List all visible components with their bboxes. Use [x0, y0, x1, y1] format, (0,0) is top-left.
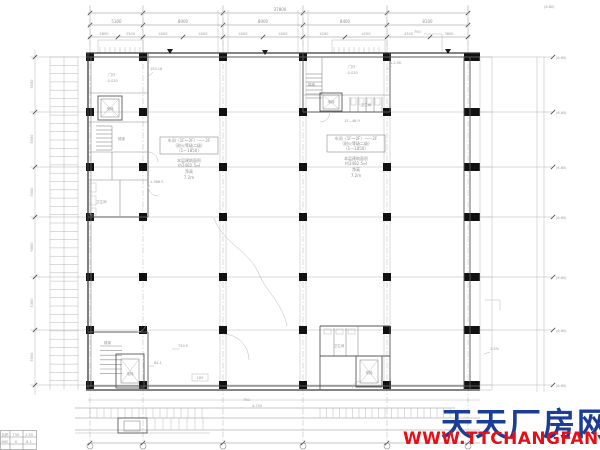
dim-left: 5300 — [30, 299, 34, 308]
annotation: 84.1 — [154, 361, 162, 365]
column-marker — [299, 213, 307, 221]
watermark-site-name: 天天厂房网 — [441, 399, 599, 433]
room-label-toilet: 卫生间 — [361, 102, 372, 107]
level-label: (6.60) — [556, 276, 567, 280]
column-marker — [219, 108, 227, 116]
level-label: (6.60) — [556, 111, 567, 115]
dim-left: 5500 — [30, 353, 34, 362]
floor-plan-svg: 车间（1F～2F）——2F （耐火等级二级） （1—1850） 本层建筑面积 约… — [0, 0, 600, 450]
dim-sub: 2500 — [126, 32, 135, 36]
level-label: (6.60) — [556, 166, 567, 170]
core-block-top-middle — [303, 53, 390, 122]
hall-label-right: 车间（1F～2F）——2F （耐火等级二级） （1—1850） 本层建筑面积 约… — [327, 135, 385, 178]
level-label: (6.60) — [556, 384, 567, 388]
column-marker — [472, 163, 480, 171]
column-marker — [219, 163, 227, 171]
door-arc — [148, 186, 158, 196]
dim-left: 5500 — [30, 135, 34, 144]
room-label-toilet: 卫生间 — [334, 343, 345, 348]
annotation: 750 — [414, 30, 421, 34]
annotation: 750 — [243, 398, 250, 402]
dock-structure-inner — [124, 421, 140, 431]
level-label: (6.60) — [556, 56, 567, 60]
room-label-stair: 楼梯 — [104, 340, 111, 345]
room-label-elevator: 电梯 — [366, 370, 374, 375]
dim-left: 5500 — [30, 80, 34, 89]
hall-right-note4: 7.2m — [351, 173, 361, 178]
legend-cell: T50 — [12, 433, 20, 437]
column-marker — [472, 326, 480, 334]
level-label: (6.60) — [556, 329, 567, 333]
dim-left: 5000 — [30, 188, 34, 197]
dim-bay: 8000 — [258, 19, 269, 24]
fixture — [351, 98, 356, 105]
room-label-lobby: 门厅 — [109, 72, 116, 77]
dim-sub: 4000 — [239, 32, 248, 36]
column-marker — [464, 213, 472, 221]
column-marker — [299, 326, 307, 334]
column-marker — [299, 273, 307, 281]
floor-plan-page: 车间（1F～2F）——2F （耐火等级二级） （1—1850） 本层建筑面积 约… — [0, 0, 600, 450]
canopy-outline — [332, 40, 385, 53]
column-marker — [464, 326, 472, 334]
hall-left-note2: 约2482.5㎡ — [178, 162, 200, 168]
column-marker — [472, 381, 480, 389]
dim-sub: 3800 — [445, 32, 454, 36]
ramp-edge-mark — [485, 300, 500, 310]
annotation: 1-2.0K — [390, 61, 402, 65]
dim-sub: 2800 — [100, 32, 109, 36]
column-marker — [299, 381, 307, 389]
column-marker — [464, 381, 472, 389]
room-label-stair: 楼梯 — [308, 82, 316, 87]
annotation: 1-988.5 — [150, 180, 164, 184]
hall-right-note3: 净高 — [352, 166, 360, 172]
legend-cell: 8HE — [1, 440, 8, 444]
axis-bubble — [140, 443, 146, 449]
axis-bubble — [384, 443, 390, 449]
beam-lines — [220, 57, 492, 385]
room-label-toilet: 卫生间 — [96, 199, 107, 204]
column-grid-lines — [30, 6, 553, 442]
column-marker — [383, 213, 391, 221]
dim-bay: 8400 — [340, 19, 351, 24]
annotation: (6.60) — [544, 5, 555, 9]
column-marker — [464, 163, 472, 171]
dim-bay: 8000 — [178, 19, 189, 24]
column-marker — [464, 108, 472, 116]
legend-cell: 名称 — [2, 432, 9, 437]
room-label-level: -0.020 — [346, 71, 357, 75]
room-label-stair: 楼梯 — [118, 136, 125, 141]
column-marker — [219, 213, 227, 221]
door-arc — [320, 112, 330, 122]
annotation: 180 — [197, 376, 204, 380]
annotation: 750.5 — [178, 344, 188, 348]
left-dimension-chain — [33, 50, 78, 395]
hall-label-left: 车间（1F～2F）——2F （耐火等级二级） （1—1850） 本层建筑面积 约… — [160, 137, 218, 180]
dim-sub: 4200 — [320, 32, 329, 36]
dim-sub: 4000 — [279, 32, 288, 36]
column-marker — [139, 108, 147, 116]
column-marker — [472, 108, 480, 116]
legend-table: 名称 T50 1-50 8HE 6 8-1 — [1, 431, 37, 450]
legend-cell: 6 — [15, 440, 17, 444]
hall-right-box-line3: （1—1850） — [344, 146, 369, 151]
axis-bubble — [300, 443, 306, 449]
column-marker — [219, 381, 227, 389]
axis-bubble — [87, 443, 93, 449]
entrance-canopies — [98, 40, 385, 53]
hall-right-note2: 约2482.5㎡ — [345, 160, 367, 166]
level-label: (6.60) — [556, 216, 567, 220]
dim-sub: 4000 — [159, 32, 168, 36]
dim-sub: 4000 — [199, 32, 208, 36]
hall-left-note3: 净高 — [185, 168, 193, 174]
revision-curve — [214, 218, 287, 326]
dim-bay: 5300 — [111, 19, 122, 24]
column-marker — [219, 273, 227, 281]
annotation: 150.18 — [150, 67, 162, 71]
dimension-lines-top — [88, 5, 470, 53]
hatch-ramp-strip — [480, 57, 492, 390]
hall-left-box-line3: （1—1850） — [177, 148, 202, 153]
dim-sub: 4200 — [362, 32, 371, 36]
legend-cell: 8-1 — [26, 440, 32, 444]
column-marker — [299, 163, 307, 171]
column-marker — [86, 326, 94, 334]
large-door-arc — [223, 334, 249, 360]
room-label-level: -0.020 — [106, 79, 117, 83]
stair-flights — [96, 74, 322, 374]
column-marker — [86, 381, 94, 389]
dim-sub: 4300 — [404, 32, 413, 36]
column-marker — [139, 273, 147, 281]
annotation: 1.5% — [490, 347, 500, 351]
hall-left-note4: 7.2m — [184, 175, 194, 180]
fixture — [324, 329, 331, 334]
column-marker — [219, 326, 227, 334]
room-label-lobby: 门厅 — [349, 64, 357, 69]
door-arc — [148, 152, 158, 162]
core-block-bottom-right — [320, 326, 390, 390]
column-marker — [383, 163, 391, 171]
column-markers — [86, 53, 480, 389]
axis-bubble — [220, 443, 226, 449]
column-marker — [86, 273, 94, 281]
fixture — [375, 98, 380, 105]
room-label-elevator: 电梯 — [127, 371, 134, 376]
room-label-area: 1F—48.9 — [344, 119, 360, 123]
column-marker — [86, 108, 94, 116]
leader — [484, 352, 490, 354]
column-marker — [472, 213, 480, 221]
annotation: 4-750 — [252, 404, 262, 408]
room-label-elevator: 电梯 — [107, 106, 114, 111]
column-marker — [383, 273, 391, 281]
dimension-texts: 37800 5300 8000 8000 8400 8100 2800 2500… — [30, 7, 567, 388]
column-marker — [86, 163, 94, 171]
legend-cell: 1-50 — [25, 433, 33, 437]
fixture — [348, 329, 355, 334]
dim-left: 6000 — [30, 243, 34, 252]
fixture — [336, 329, 343, 334]
column-marker — [464, 273, 472, 281]
door-arc — [352, 381, 361, 390]
building-outline — [86, 53, 492, 390]
column-marker — [139, 163, 147, 171]
right-extension-lines — [537, 55, 555, 392]
dim-bay: 8100 — [422, 19, 433, 24]
column-marker — [472, 273, 480, 281]
room-label-elevator: 电梯 — [328, 99, 336, 104]
dim-total: 37800 — [274, 7, 287, 12]
watermark-site-url: WWW.TTCHANGFANG.COM — [403, 429, 600, 447]
